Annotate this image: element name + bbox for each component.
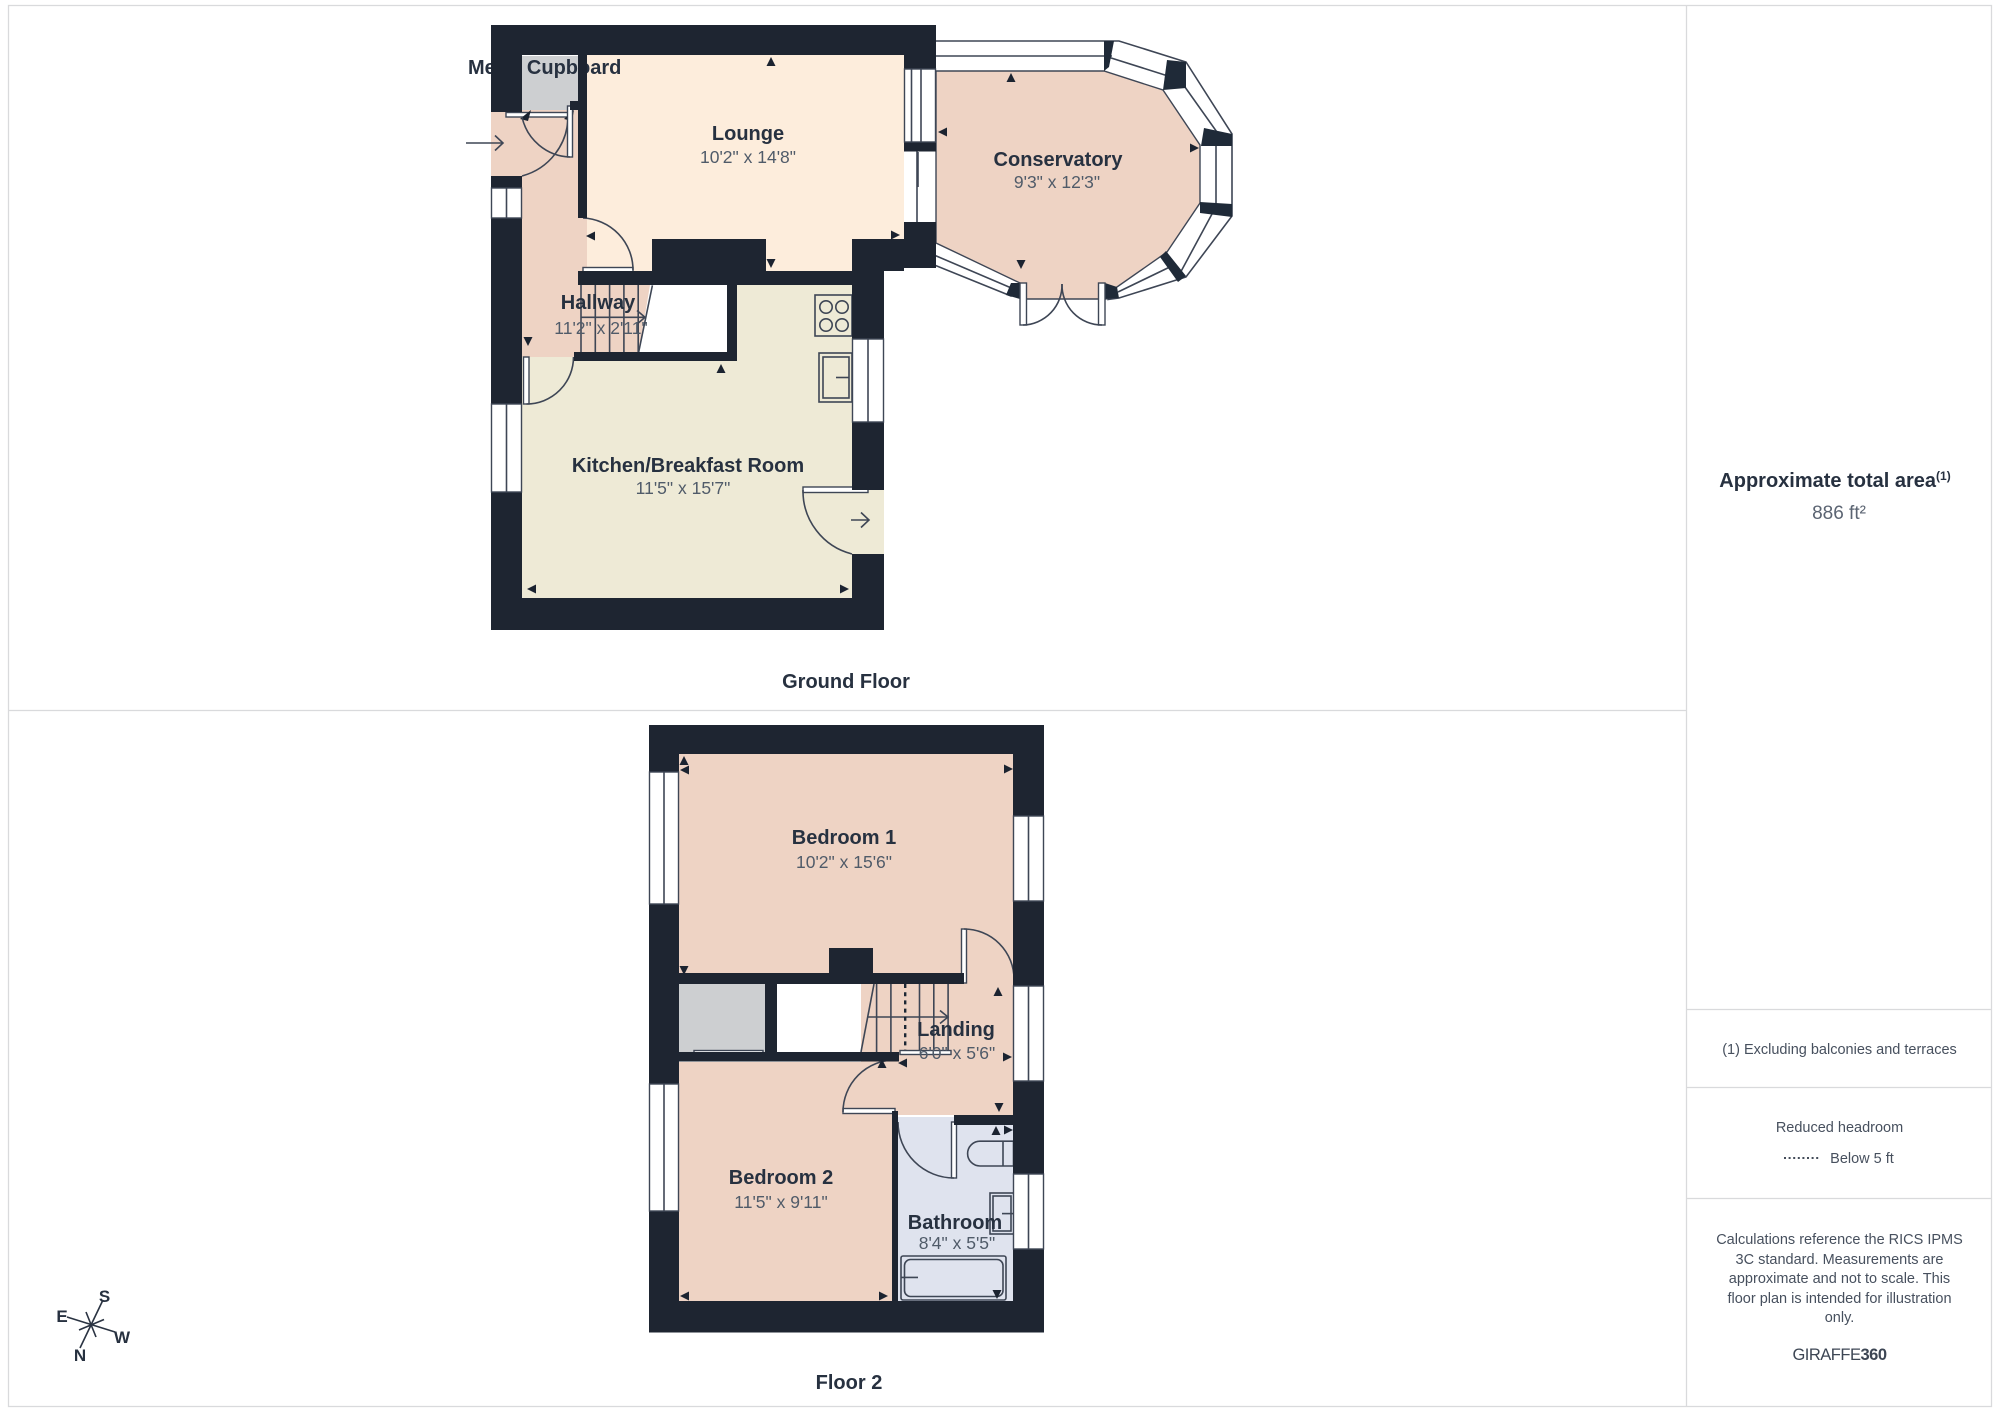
svg-text:Floor 2: Floor 2 — [816, 1372, 883, 1394]
svg-text:N: N — [74, 1346, 86, 1365]
svg-text:3C standard. Measurements are: 3C standard. Measurements are — [1736, 1252, 1944, 1268]
svg-text:886 ft²: 886 ft² — [1812, 503, 1866, 524]
svg-text:Bedroom 2: Bedroom 2 — [729, 1167, 833, 1189]
svg-text:Lounge: Lounge — [712, 123, 784, 145]
svg-text:10'2" x 14'8": 10'2" x 14'8" — [700, 147, 796, 167]
svg-text:Ground Floor: Ground Floor — [782, 671, 910, 693]
svg-text:Approximate total area(1): Approximate total area(1) — [1719, 469, 1950, 492]
svg-text:6'0" x 5'6": 6'0" x 5'6" — [919, 1043, 996, 1063]
svg-text:only.: only. — [1825, 1310, 1855, 1326]
svg-text:floor plan is intended for ill: floor plan is intended for illustration — [1727, 1291, 1951, 1307]
svg-text:(1) Excluding balconies and te: (1) Excluding balconies and terraces — [1722, 1042, 1957, 1058]
svg-text:Kitchen/Breakfast Room: Kitchen/Breakfast Room — [572, 455, 804, 477]
svg-text:S: S — [99, 1287, 110, 1306]
svg-text:E: E — [56, 1307, 67, 1326]
svg-text:W: W — [114, 1328, 131, 1347]
svg-text:9'3" x 12'3": 9'3" x 12'3" — [1014, 172, 1100, 192]
svg-text:approximate and not to scale.: approximate and not to scale. This — [1729, 1271, 1950, 1287]
svg-text:8'4" x 5'5": 8'4" x 5'5" — [919, 1233, 996, 1253]
svg-text:Bathroom: Bathroom — [908, 1212, 1002, 1234]
svg-text:Bedroom 1: Bedroom 1 — [792, 827, 896, 849]
svg-text:11'5" x 15'7": 11'5" x 15'7" — [636, 478, 731, 498]
svg-text:Hallway: Hallway — [561, 292, 636, 314]
svg-text:GIRAFFE360: GIRAFFE360 — [1792, 1346, 1886, 1364]
svg-text:Calculations reference the RIC: Calculations reference the RICS IPMS — [1716, 1232, 1963, 1248]
svg-text:Landing: Landing — [917, 1019, 995, 1041]
svg-text:Below 5 ft: Below 5 ft — [1830, 1151, 1894, 1167]
svg-text:11'5" x 9'11": 11'5" x 9'11" — [734, 1192, 827, 1212]
svg-text:11'2" x 2'11": 11'2" x 2'11" — [554, 318, 647, 338]
svg-text:Reduced headroom: Reduced headroom — [1776, 1120, 1903, 1136]
svg-text:Conservatory: Conservatory — [994, 149, 1124, 171]
svg-text:10'2" x 15'6": 10'2" x 15'6" — [796, 852, 892, 872]
